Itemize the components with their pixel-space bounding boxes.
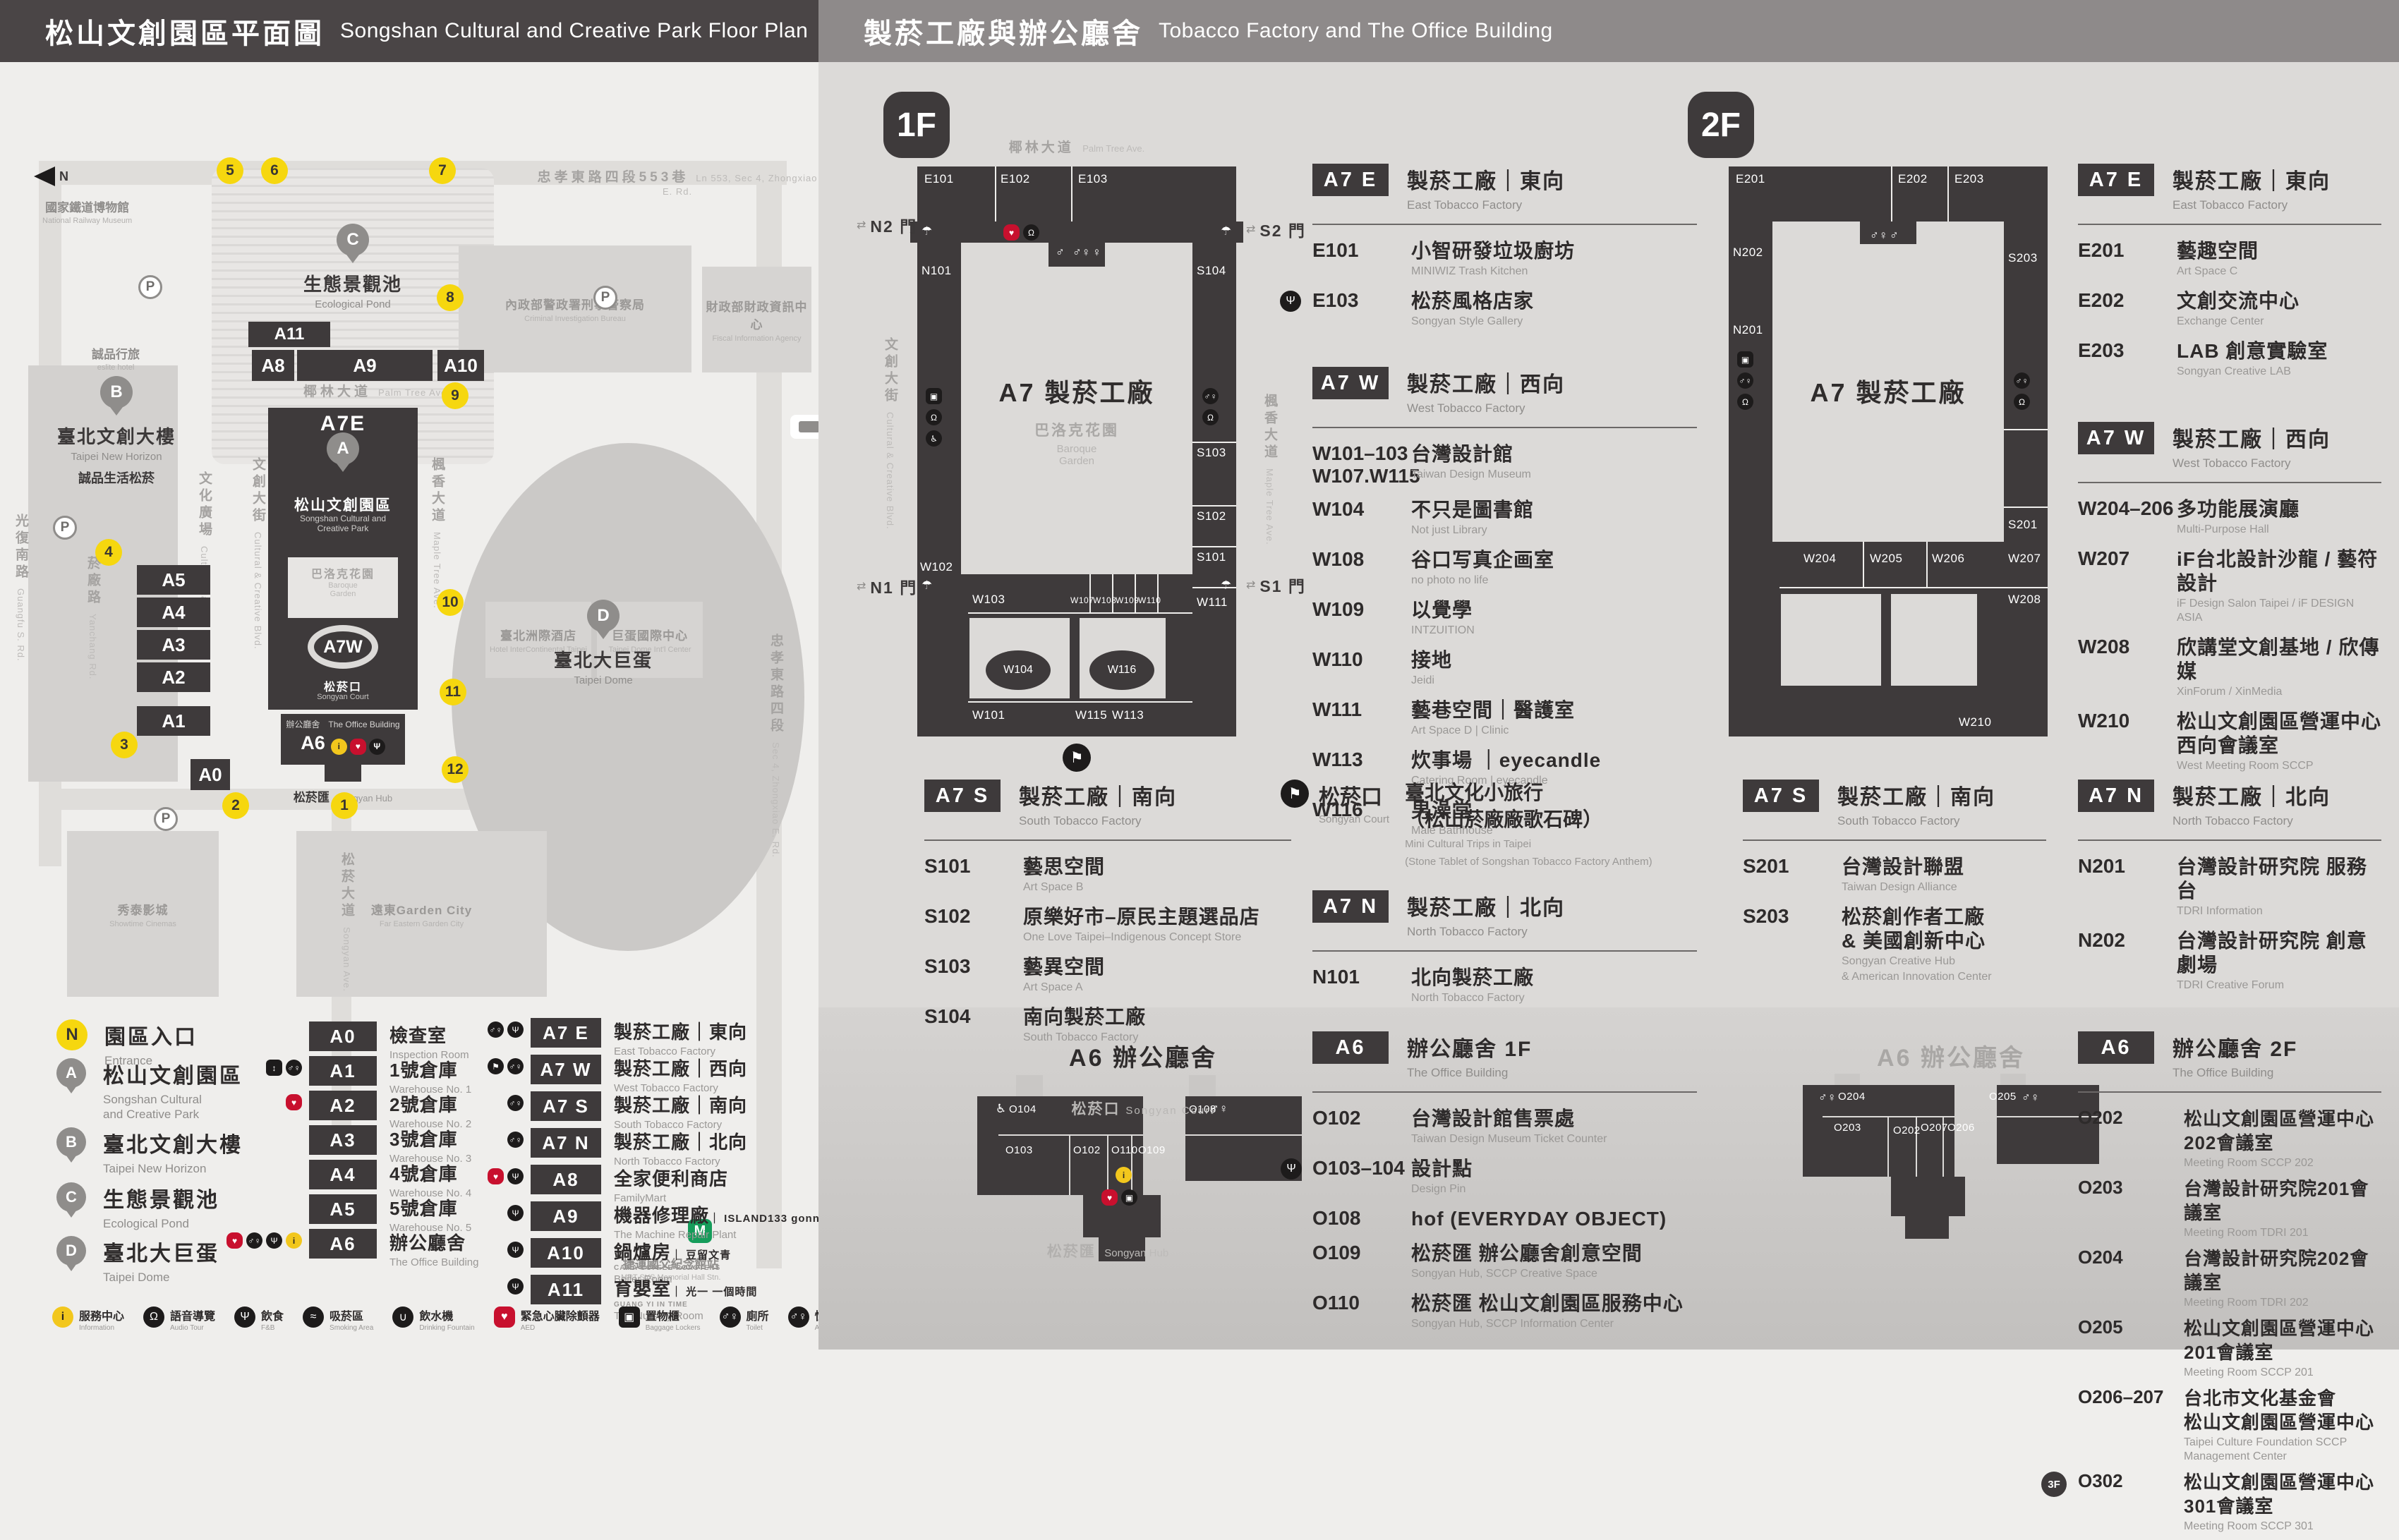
- item-code: S103: [924, 955, 1023, 995]
- gate-N1門: ⇄N1 門: [857, 574, 917, 598]
- plan-room-W104: W104: [986, 650, 1051, 690]
- section-badge: A7 S: [924, 780, 1001, 812]
- entrance-number-4: 4: [95, 539, 122, 566]
- mini-trips-icon: ⚑: [1281, 780, 1309, 808]
- north-label: N: [59, 169, 68, 184]
- legend-building-suben: CAMA COFFEE ROASTERS: [614, 1264, 731, 1272]
- facility-en: Audio Tour: [170, 1324, 215, 1332]
- legend-badge: A8: [531, 1165, 601, 1194]
- item-en: Taiwan Design Museum: [1411, 468, 1531, 482]
- plan-room-O204: O204: [1838, 1091, 1866, 1103]
- legend-building-sub: ｜ ISLAND133 gonna+: [709, 1213, 833, 1225]
- section-titles: 製菸工廠｜東向East Tobacco Factory: [2173, 164, 2331, 212]
- road-zh: 光復南路: [13, 514, 28, 581]
- plan-room-W109: W109: [1116, 595, 1139, 605]
- item-zh: 接地: [1411, 648, 1452, 672]
- legend-badge: A7 W: [531, 1055, 601, 1084]
- list-item-O302: 3FO302松山文創園區營運中心301會議室Meeting Room SCCP …: [2078, 1470, 2381, 1534]
- section-title-en: South Tobacco Factory: [1837, 814, 1995, 828]
- legend-building-zh: 全家便利商店: [614, 1165, 728, 1191]
- item-en: TDRI Creative Forum: [2177, 978, 2381, 993]
- office-plan-2f-title: A6 辦公廳舍: [1803, 1038, 2099, 1073]
- list-item-O108: O108hof (EVERYDAY OBJECT): [1312, 1207, 1697, 1231]
- legend-badge: A0: [309, 1021, 377, 1051]
- road-en: Songyan Ave.: [342, 927, 352, 992]
- legend-badge: A4: [309, 1160, 377, 1189]
- plan-room-O205: O205: [1989, 1091, 2017, 1103]
- maple-tree-ave-label: 楓香大道Maple Tree Ave.: [1260, 394, 1279, 545]
- pin-zh: 生態景觀池: [303, 270, 402, 296]
- plan-room-O109: O109: [1138, 1144, 1166, 1156]
- info-icon: i: [52, 1306, 73, 1328]
- item-zh2: & 美國創新中心: [1842, 929, 1992, 953]
- legend-place-D: D臺北大巨蛋Taipei Dome: [56, 1236, 219, 1285]
- a7-courtyard-label-2f: A7 製菸工廠: [1772, 372, 2004, 409]
- facility-zh: 廁所: [747, 1306, 769, 1323]
- toilet-icon: ♂♀: [1870, 229, 1888, 243]
- section-head: A7 W製菸工廠｜西向West Tobacco Factory: [1312, 367, 1697, 416]
- legend-building-icons: ♥: [227, 1094, 302, 1110]
- map-pin-D: D臺北大巨蛋Taipei Dome: [512, 600, 695, 686]
- item-code: O108: [1312, 1207, 1411, 1231]
- road-en: Sec 4, Zhongxiao E. Rd.: [771, 742, 781, 858]
- section-divider: [1312, 1091, 1697, 1093]
- item-code: O202: [2078, 1107, 2184, 1170]
- section-titles: 製菸工廠｜西向West Tobacco Factory: [1407, 367, 1565, 416]
- item-zh: 松菸匯 松山文創園區服務中心: [1411, 1292, 1684, 1316]
- item-en: Meeting Room TDRI 201: [2184, 1226, 2381, 1240]
- item-name: 接地Jeidi: [1411, 648, 1452, 688]
- section-title-en: North Tobacco Factory: [2173, 814, 2331, 828]
- list-item-N201: N201台灣設計研究院 服務台TDRI Information: [2078, 855, 2381, 918]
- facility-en: AED: [521, 1324, 600, 1332]
- gate-label: S1 門: [1259, 573, 1306, 597]
- list-item-E201: E201藝趣空間Art Space C: [2078, 239, 2381, 279]
- fountain-icon: ∪: [392, 1306, 413, 1328]
- item-zh: 台灣設計研究院 服務台: [2177, 855, 2381, 903]
- legend-building-zh: 鍋爐房｜ 豆留文青CAMA COFFEE ROASTERS: [614, 1238, 731, 1272]
- item-name: 台灣設計聯盟Taiwan Design Alliance: [1842, 855, 1964, 895]
- office-building-map-label: 辦公廳舍 The Office Building: [281, 718, 405, 730]
- item-en: One Love Taipei–Indigenous Concept Store: [1023, 930, 1260, 945]
- facility-text: 飲水機Drinking Fountain: [419, 1306, 474, 1332]
- section-title-en: East Tobacco Factory: [2173, 198, 2331, 212]
- plan-room-S201: S201: [2008, 518, 2038, 532]
- legend-building-zh: 製菸工廠｜西向: [614, 1055, 747, 1081]
- entrance-number-9: 9: [442, 382, 469, 409]
- restaurant-icon: Ψ: [507, 1205, 524, 1221]
- road-label: 忠孝東路四段553巷Ln 553, Sec 4, Zhongxiao E. Rd…: [536, 166, 818, 198]
- item-en: Songyan Creative Hub: [1842, 954, 1992, 969]
- toilet-icon: ♂♀: [286, 1060, 302, 1076]
- legend-building-sub: ｜ 光一 一個時間GUANG YI IN TIME: [614, 1286, 757, 1309]
- gate-label: N2 門: [870, 213, 917, 237]
- road-zh: 忠孝東路四段: [768, 633, 783, 735]
- item-code: O204: [2078, 1247, 2184, 1310]
- audio-icon: Ω: [926, 409, 942, 425]
- park-title-zh: 松山文創園區平面圖: [45, 11, 325, 51]
- item-zh: 以覺學: [1411, 598, 1475, 622]
- pin-icon-C: C: [337, 224, 369, 256]
- item-zh: 南向製菸工廠: [1023, 1005, 1146, 1029]
- road-zh: 菸廠路: [85, 556, 100, 607]
- plan-room-W102: W102: [920, 560, 953, 574]
- section-title-zh: 製菸工廠｜北向: [1407, 890, 1565, 921]
- item-zh: 台灣設計聯盟: [1842, 855, 1964, 879]
- section-divider: [1312, 950, 1697, 952]
- item-en: Jeidi: [1411, 674, 1452, 688]
- facility-text: 飲食F&B: [261, 1306, 284, 1332]
- header-left: 松山文創園區平面圖 Songshan Cultural and Creative…: [0, 0, 818, 62]
- floor3-badge: 3F: [2041, 1472, 2067, 1497]
- road-en: Guangfu S. Rd.: [16, 588, 26, 662]
- facility-aed: ♥緊急心臟除顫器AED: [494, 1306, 600, 1332]
- legend-building-text: 製菸工廠｜東向East Tobacco Factory: [614, 1018, 747, 1057]
- list-item-O102: O102台灣設計館售票處Taiwan Design Museum Ticket …: [1312, 1107, 1697, 1146]
- road-en: Cultural & Creative Blvd.: [253, 532, 263, 650]
- neighbor-building: 秀泰影城Showtime Cinemas: [67, 831, 219, 997]
- item-en: Meeting Room SCCP 301: [2184, 1520, 2381, 1534]
- plan-room-S102: S102: [1197, 509, 1226, 523]
- building-block-a8: A8: [252, 350, 294, 381]
- section-title-zh: 製菸工廠｜西向: [1407, 367, 1565, 398]
- road-zh: 椰林大道: [303, 384, 371, 399]
- a6-map-label: A6i♥Ψ: [281, 732, 405, 755]
- legend-building-text: 機器修理廠｜ ISLAND133 gonna+The Machine Repai…: [614, 1201, 833, 1241]
- road-label: 楓香大道Maple Tree Ave.: [428, 457, 447, 609]
- songyan-court-en: Songyan Court: [1319, 813, 1389, 825]
- parking-icon: P: [593, 286, 617, 310]
- plan-room-W210: W210: [1959, 715, 1991, 729]
- facility-smoking: ≈吸菸區Smoking Area: [303, 1306, 373, 1332]
- item-name: hof (EVERYDAY OBJECT): [1411, 1207, 1667, 1231]
- item-en: Meeting Room SCCP 201: [2184, 1366, 2381, 1380]
- gate-N2門: ⇄N2 門: [857, 213, 917, 237]
- plan-room-W113: W113: [1112, 708, 1144, 722]
- section-divider: [1312, 224, 1697, 225]
- item-zh2: 西向會議室: [2177, 734, 2381, 758]
- pin-en: Taipei New Horizon: [71, 451, 162, 463]
- item-code2: W107.W115: [1312, 465, 1411, 487]
- pin-icon-D: D: [56, 1236, 86, 1266]
- umbrella-icon: ☂: [1221, 578, 1231, 593]
- locker-icon: ▣: [1737, 351, 1753, 368]
- legend-badge: A1: [309, 1056, 377, 1086]
- facility-audio: Ω語音導覽Audio Tour: [143, 1306, 215, 1332]
- legend-building-icons: ⚑♂♀: [457, 1058, 524, 1074]
- legend-building-A7S: ♂♀A7 S製菸工廠｜南向South Tobacco Factory: [457, 1091, 747, 1131]
- road-en: Palm Tree Ave.: [378, 387, 450, 398]
- section-title-zh: 製菸工廠｜西向: [2173, 422, 2331, 453]
- item-en: Art Space B: [1023, 880, 1105, 895]
- item-name: 松山文創園區營運中心西向會議室West Meeting Room SCCP: [2177, 710, 2381, 773]
- item-zh: 台灣設計研究院 創意劇場: [2177, 929, 2381, 977]
- facility-en: Information: [79, 1324, 124, 1332]
- info-icon: i: [331, 739, 347, 755]
- plan-room-W101: W101: [972, 708, 1005, 722]
- aed-icon: ♥: [1003, 224, 1020, 241]
- legend-building-icons: Ψ: [457, 1278, 524, 1295]
- section-badge: A7 N: [1312, 890, 1389, 923]
- facility-text: 緊急心臟除顫器AED: [521, 1306, 600, 1332]
- legend-building-A5: A55號倉庫Warehouse No. 5: [227, 1194, 471, 1234]
- facility-restaurant: Ψ飲食F&B: [234, 1306, 284, 1332]
- list-item-O206207: O206–207台北市文化基金會松山文創園區營運中心Taipei Culture…: [2078, 1386, 2381, 1464]
- list-item-W108: W108谷口写真企画室no photo no life: [1312, 548, 1697, 588]
- facility-zh: 語音導覽: [170, 1306, 215, 1323]
- item-name: 不只是圖書館Not just Library: [1411, 498, 1534, 538]
- list-item-E103: ΨE103松菸風格店家Songyan Style Gallery: [1312, 289, 1697, 329]
- facility-zh: 置物櫃: [646, 1306, 701, 1323]
- baroque-garden-zh: 巴洛克花園: [288, 564, 398, 581]
- pin-icon-D: D: [587, 600, 620, 632]
- plan-room-E203: E203: [1954, 172, 1984, 186]
- neighbor-building: 內政部警政署刑事警察局Criminal Investigation Bureau: [459, 245, 691, 372]
- item-zh: LAB 創意實驗室: [2177, 339, 2328, 363]
- legend-building-icons: ♂♀Ψ: [457, 1021, 524, 1038]
- item-zh: iF台北設計沙龍 / 藝符設計: [2177, 547, 2381, 595]
- section-badge: A7 E: [1312, 164, 1389, 196]
- restaurant-icon: Ψ: [369, 739, 385, 755]
- aed-icon: ♥: [350, 739, 366, 755]
- item-name: LAB 創意實驗室Songyan Creative LAB: [2177, 339, 2328, 379]
- songyan-court-head: ⚑ 松菸口 Songyan Court: [1281, 780, 1389, 868]
- item-zh: 松菸匯 辦公廳舍創意空間: [1411, 1242, 1643, 1266]
- item-name: 多功能展演廳Multi-Purpose Hall: [2177, 497, 2300, 537]
- list-item-O205: O205松山文創園區營運中心201會議室Meeting Room SCCP 20…: [2078, 1316, 2381, 1380]
- toilet-icon: ♂♀: [1737, 372, 1753, 389]
- floor2-badge: 2F: [1688, 92, 1754, 158]
- aed-icon: ♥: [226, 1232, 243, 1249]
- item-zh: 台灣設計館: [1411, 442, 1531, 466]
- list-item-E101: E101小智研發垃圾廚坊MINIWIZ Trash Kitchen: [1312, 239, 1697, 279]
- item-name: iF台北設計沙龍 / 藝符設計iF Design Salon Taipei / …: [2177, 547, 2381, 625]
- list-item-S201: S201台灣設計聯盟Taiwan Design Alliance: [1743, 855, 2046, 895]
- item-name: 台灣設計研究院202會議室Meeting Room TDRI 202: [2184, 1247, 2381, 1310]
- plan-room-W204: W204: [1803, 552, 1836, 566]
- road-label: 光復南路Guangfu S. Rd.: [11, 514, 30, 662]
- baroque-garden-en: Baroque Garden: [288, 581, 398, 598]
- aed-icon: ♥: [488, 1168, 504, 1184]
- allgender-icon: ♂♀: [788, 1306, 809, 1328]
- item-zh: 松山文創園區營運中心201會議室: [2184, 1316, 2381, 1364]
- a7-west-wall: [268, 557, 288, 618]
- section-divider: [2078, 839, 2381, 841]
- legend-building-A2: ♥A22號倉庫Warehouse No. 2: [227, 1091, 471, 1130]
- building-block-a5: A5: [137, 565, 210, 595]
- pin-zh: 臺北文創大樓: [57, 423, 176, 449]
- plan-room-O102: O102: [1073, 1144, 1101, 1156]
- item-name: 台灣設計研究院 服務台TDRI Information: [2177, 855, 2381, 918]
- section-head: A7 N製菸工廠｜北向North Tobacco Factory: [2078, 780, 2381, 828]
- item-en: XinForum / XinMedia: [2177, 685, 2381, 699]
- men-icon: ♂: [1056, 245, 1065, 260]
- item-name: 藝思空間Art Space B: [1023, 855, 1105, 895]
- facility-toilet: ♂♀廁所Toilet: [720, 1306, 769, 1332]
- legend-building-A3: A33號倉庫Warehouse No. 3: [227, 1125, 471, 1165]
- accessible-icon: ♿: [926, 430, 942, 447]
- legend-badge: A6: [309, 1229, 377, 1259]
- entrance-number-10: 10: [437, 589, 464, 616]
- item-name: 欣講堂文創基地 / 欣傳媒XinForum / XinMedia: [2177, 636, 2381, 699]
- section-divider: [1743, 839, 2046, 841]
- road-zh: 文創大街: [250, 457, 265, 525]
- item-code: E203: [2078, 339, 2177, 379]
- legend-badge: A11: [531, 1275, 601, 1304]
- legend-building-A4: A44號倉庫Warehouse No. 4: [227, 1160, 471, 1199]
- item-en: iF Design Salon Taipei / iF DESIGN ASIA: [2177, 597, 2381, 625]
- legend-badge: A10: [531, 1238, 601, 1268]
- legend-building-A8: ♥ΨA8全家便利商店FamilyMart: [457, 1165, 728, 1204]
- map-pin-C: C生態景觀池Ecological Pond: [261, 224, 445, 310]
- north-arrow: N: [24, 166, 68, 186]
- building-block-a0: A0: [191, 759, 230, 790]
- list-item-S102: S102原樂好市–原民主題選品店One Love Taipei–Indigeno…: [924, 905, 1291, 945]
- road-label: 忠孝東路四段Sec 4, Zhongxiao E. Rd.: [766, 633, 785, 858]
- item-en: Exchange Center: [2177, 315, 2300, 329]
- building-block-a4: A4: [137, 598, 210, 627]
- entrance-number-12: 12: [442, 756, 469, 783]
- accessible-icon: ♿: [996, 1102, 1006, 1116]
- list-item-W104: W104不只是圖書館Not just Library: [1312, 498, 1697, 538]
- aed-icon: ♥: [1101, 1189, 1118, 1206]
- item-code: S203: [1743, 905, 1842, 984]
- a7w-map-label: A7W: [308, 625, 378, 669]
- toilet-icon: ♂♀: [2022, 1091, 2040, 1105]
- toilet-icon: ♂♀: [2014, 372, 2030, 389]
- plan-room-W103: W103: [972, 593, 1005, 607]
- item-en: Art Space D | Clinic: [1411, 724, 1575, 738]
- legend-building-icons: ♥Ψ: [457, 1168, 524, 1184]
- item-en: Not just Library: [1411, 523, 1534, 538]
- legend-building-icons: ♥♂♀Ψi: [227, 1232, 302, 1249]
- plan-room-O202: O202: [1893, 1124, 1921, 1136]
- section-head: A6辦公廳舍 2FThe Office Building: [2078, 1031, 2381, 1080]
- item-zh: 欣講堂文創基地 / 欣傳媒: [2177, 636, 2381, 684]
- item-zh: 藝巷空間｜醫護室: [1411, 698, 1575, 722]
- plan-room-W107: W107: [1070, 595, 1094, 605]
- legend-place-text: 臺北大巨蛋Taipei Dome: [103, 1236, 219, 1285]
- list-item-N101: N101北向製菸工廠North Tobacco Factory: [1312, 966, 1697, 1005]
- section-title-zh: 製菸工廠｜東向: [1407, 164, 1565, 195]
- entrance-number-2: 2: [222, 792, 249, 819]
- songyan-court-section: ⚑ 松菸口 Songyan Court 臺北文化小旅行 （松山菸廠廠歌石碑） M…: [1281, 780, 1697, 868]
- plan-room-W115: W115: [1075, 708, 1107, 722]
- trips-icon: ⚑: [1063, 744, 1091, 772]
- item-name: 原樂好市–原民主題選品店One Love Taipei–Indigenous C…: [1023, 905, 1260, 945]
- item-name: 台灣設計研究院 創意劇場TDRI Creative Forum: [2177, 929, 2381, 993]
- item-en: Multi-Purpose Hall: [2177, 523, 2300, 537]
- section-divider: [1312, 427, 1697, 428]
- item-en: Meeting Room TDRI 202: [2184, 1296, 2381, 1310]
- info-icon: i: [286, 1232, 302, 1249]
- facility-text: 置物櫃Baggage Lockers: [646, 1306, 701, 1332]
- section-title-en: South Tobacco Factory: [1019, 814, 1177, 828]
- item-en: no photo no life: [1411, 574, 1554, 588]
- restaurant-icon: Ψ: [1280, 291, 1301, 312]
- legend-badge: A3: [309, 1125, 377, 1155]
- section-titles: 製菸工廠｜南向South Tobacco Factory: [1019, 780, 1177, 828]
- map-label: 國家鐵道博物館National Railway Museum: [42, 198, 132, 225]
- item-name: 設計點Design Pin: [1411, 1157, 1473, 1196]
- section-a7s-1f: A7 S製菸工廠｜南向South Tobacco FactoryS101藝思空間…: [924, 780, 1291, 1055]
- building-block-a1: A1: [137, 706, 210, 736]
- item-code: N202: [2078, 929, 2177, 993]
- songyan-court-desc: 臺北文化小旅行 （松山菸廠廠歌石碑） Mini Cultural Trips i…: [1405, 780, 1652, 868]
- section-divider: [2078, 482, 2381, 483]
- item-zh: hof (EVERYDAY OBJECT): [1411, 1207, 1667, 1231]
- item-zh: 炊事場 ｜eyecandle: [1411, 748, 1601, 772]
- item-zh: 藝異空間: [1023, 955, 1105, 979]
- legend-building-text: 製菸工廠｜北向North Tobacco Factory: [614, 1128, 747, 1168]
- facility-zh: 緊急心臟除顫器: [521, 1306, 600, 1323]
- section-title-zh: 辦公廳舍 1F: [1407, 1031, 1532, 1062]
- building-block-a11: A11: [248, 322, 330, 347]
- map-pin-B: B臺北文創大樓Taipei New Horizon誠品生活松菸: [25, 376, 208, 487]
- neighbor-en: Showtime Cinemas: [109, 920, 176, 928]
- item-en: MINIWIZ Trash Kitchen: [1411, 265, 1575, 279]
- item-zh: 台灣設計研究院202會議室: [2184, 1247, 2381, 1295]
- legend-place-text: 生態景觀池Ecological Pond: [103, 1182, 219, 1231]
- list-item-O103104: O103–104設計點Design Pin: [1312, 1157, 1697, 1196]
- item-code: W210: [2078, 710, 2177, 773]
- plan-room-W205: W205: [1870, 552, 1902, 566]
- neighbor-en: Far Eastern Garden City: [380, 920, 464, 928]
- item-zh: 松山文創園區營運中心301會議室: [2184, 1470, 2381, 1518]
- list-item-O204: O204台灣設計研究院202會議室Meeting Room TDRI 202: [2078, 1247, 2381, 1310]
- item-en: Meeting Room SCCP 202: [2184, 1156, 2381, 1170]
- pin-icon-B: B: [100, 376, 133, 408]
- legend-badge: A7 N: [531, 1128, 601, 1158]
- item-code: S101: [924, 855, 1023, 895]
- item-zh2: 松山文創園區營運中心: [2184, 1410, 2381, 1434]
- neighbor-building: 遠東Garden CityFar Eastern Garden City: [296, 831, 547, 997]
- list-item-W109: W109以覺學INTZUITION: [1312, 598, 1697, 638]
- item-en: Songyan Creative LAB: [2177, 365, 2328, 379]
- parking-icon: P: [138, 275, 162, 299]
- legend-building-A7W: ⚑♂♀A7 W製菸工廠｜西向West Tobacco Factory: [457, 1055, 747, 1094]
- facility-text: 服務中心Information: [79, 1306, 124, 1332]
- pin-icon-B: B: [56, 1127, 86, 1157]
- section-divider: [2078, 224, 2381, 225]
- item-code: E202: [2078, 289, 2177, 329]
- item-name: 台灣設計館售票處Taiwan Design Museum Ticket Coun…: [1411, 1107, 1607, 1146]
- legend-place-C: C生態景觀池Ecological Pond: [56, 1182, 219, 1231]
- item-name: 松菸匯 辦公廳舍創意空間Songyan Hub, SCCP Creative S…: [1411, 1242, 1643, 1281]
- list-item-O109: O109松菸匯 辦公廳舍創意空間Songyan Hub, SCCP Creati…: [1312, 1242, 1697, 1281]
- road-label: 松菸大道Songyan Ave.: [337, 852, 356, 992]
- songyan-court-map-en: Songyan Court: [268, 693, 418, 701]
- entrance-number-11: 11: [440, 679, 466, 705]
- section-head: A7 S製菸工廠｜南向South Tobacco Factory: [924, 780, 1291, 828]
- item-code: W101–103W107.W115: [1312, 442, 1411, 487]
- toilet-icon: ♂♀: [507, 1058, 524, 1074]
- item-en: West Meeting Room SCCP: [2177, 759, 2381, 773]
- section-title-en: The Office Building: [2173, 1066, 2297, 1080]
- aed-icon: ♥: [286, 1094, 302, 1110]
- restaurant-icon: Ψ: [507, 1021, 524, 1038]
- palm-tree-ave-label: 椰林大道 Palm Tree Ave.: [910, 137, 1243, 156]
- plan-room-S203: S203: [2008, 251, 2038, 265]
- section-badge: A6: [1312, 1031, 1389, 1064]
- section-title-en: North Tobacco Factory: [1407, 925, 1565, 939]
- item-zh: 藝思空間: [1023, 855, 1105, 879]
- item-en: Songyan Style Gallery: [1411, 315, 1534, 329]
- facility-fountain: ∪飲水機Drinking Fountain: [392, 1306, 474, 1332]
- audio-icon: Ω: [1737, 394, 1753, 410]
- item-zh: 多功能展演廳: [2177, 497, 2300, 521]
- pin-icon-C: C: [56, 1182, 86, 1212]
